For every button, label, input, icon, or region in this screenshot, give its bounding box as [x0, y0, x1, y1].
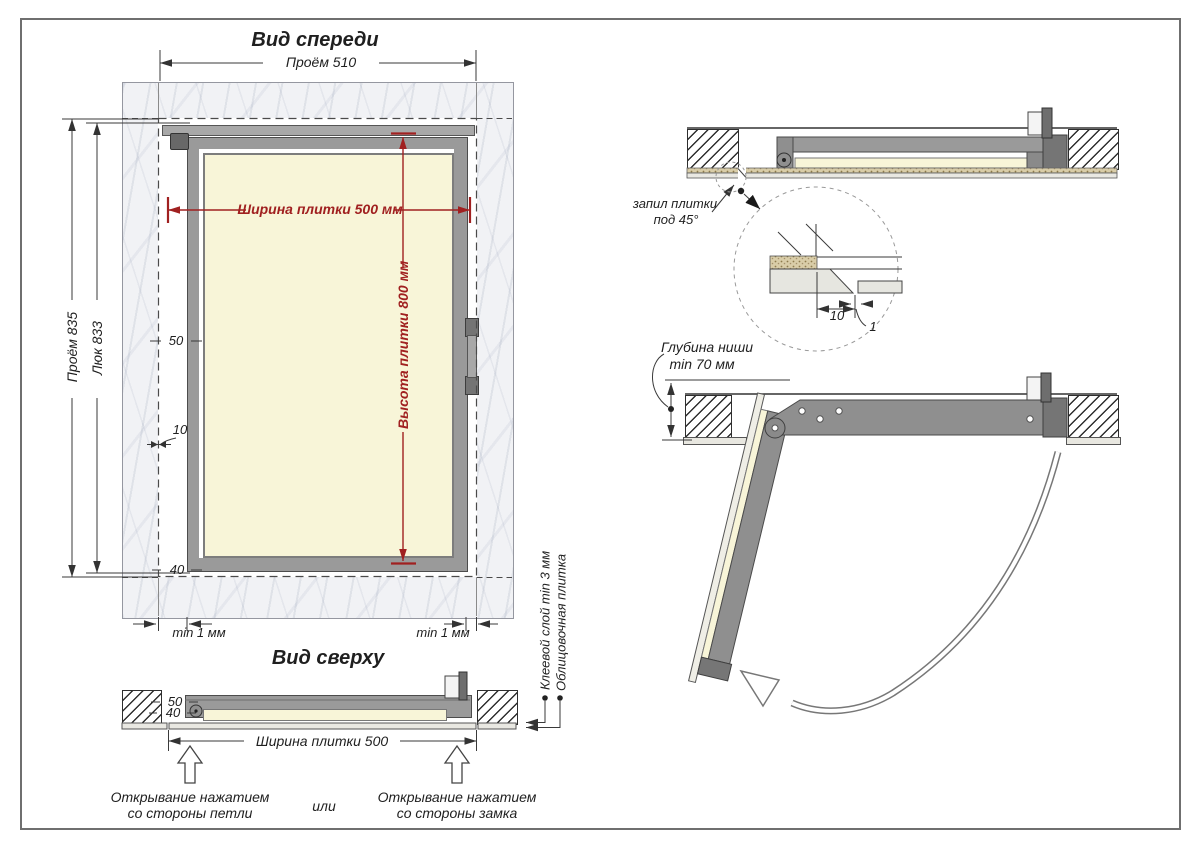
or-label: или: [294, 798, 354, 814]
top-view-wall-left: [122, 690, 162, 725]
callout-facing-tile: Облицовочная плитка: [555, 542, 570, 702]
open-lock-side-2: со стороны замка: [377, 805, 537, 821]
callout-adhesive: Клеевой слой min 3 мм: [539, 540, 554, 700]
front-view-title: Вид спереди: [235, 29, 395, 52]
detail-dim-10: 10: [822, 309, 852, 324]
top-view-door-filler: [203, 709, 447, 721]
dim-gap-right: min 1 мм: [403, 626, 483, 641]
closed-section-wall-right: [1068, 129, 1119, 170]
drawing-page: Вид спереди Проём 510 Проём 835 Люк 833 …: [0, 0, 1200, 849]
dim-opening-height: Проём 835: [64, 297, 80, 397]
dim-gap-left: min 1 мм: [159, 626, 239, 641]
niche-depth-label-2: min 70 мм: [632, 356, 772, 372]
open-section-tile-lip-right: [1066, 437, 1121, 445]
dim-tile-width: Ширина плитки 500 мм: [235, 201, 405, 217]
open-lock-side-1: Открывание нажатием: [377, 789, 537, 805]
dim-tile-height: Высота плитки 800 мм: [395, 269, 411, 429]
closed-section-wall-left: [687, 129, 739, 170]
hatch-top-frame-bar: [162, 125, 475, 136]
detail-dim-1: 1: [858, 320, 888, 335]
cut-45-label-1: запил плитки: [615, 197, 735, 212]
open-section-wall-right: [1068, 395, 1119, 439]
dim-hatch-height: Люк 833: [89, 298, 105, 398]
top-view-title: Вид сверху: [248, 647, 408, 670]
cut-45-label-2: под 45°: [616, 213, 736, 228]
dim-offset-10: 10: [165, 423, 195, 438]
open-hinge-side-2: со стороны петли: [110, 805, 270, 821]
open-hinge-side-1: Открывание нажатием: [110, 789, 270, 805]
open-section-wall-left: [685, 395, 732, 439]
dim-offset-50: 50: [161, 334, 191, 349]
top-view-wall-right: [477, 690, 518, 725]
hinge-block: [170, 133, 189, 150]
tv-tile-width: Ширина плитки 500: [242, 733, 402, 749]
dim-opening-width: Проём 510: [261, 54, 381, 70]
push-lock-lower: [465, 376, 479, 395]
dim-offset-40: 40: [162, 563, 192, 578]
niche-depth-label-1: Глубина ниши: [637, 339, 777, 355]
push-lock-bar: [467, 335, 477, 378]
tv-offset-40: 40: [158, 706, 188, 721]
open-section-tile-lip-left: [683, 437, 747, 445]
